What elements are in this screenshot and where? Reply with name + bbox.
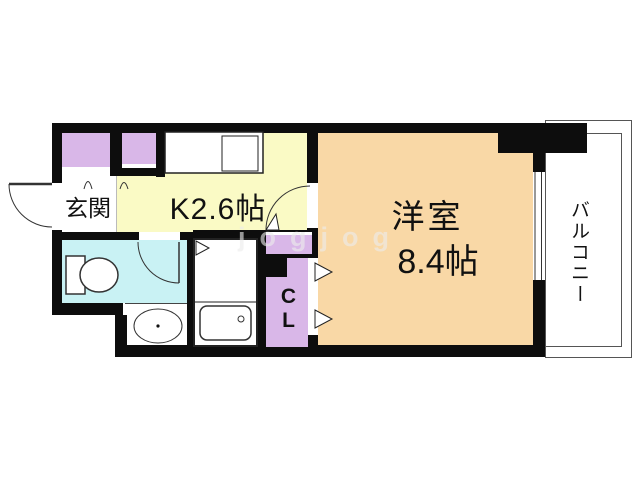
floorplan-image: 玄関 K2.6帖 洋室 8.4帖 CL バルコニー jogjog bbox=[0, 0, 640, 480]
bathtub-drain bbox=[238, 316, 244, 322]
bathroom-door-arc bbox=[138, 242, 179, 283]
genkan-step-mark bbox=[84, 182, 92, 190]
kitchen-sink bbox=[222, 136, 258, 171]
entrance-door-arc bbox=[9, 184, 52, 227]
toilet-bowl bbox=[80, 258, 118, 292]
genkan-label: 玄関 bbox=[60, 189, 116, 223]
closet-label: CL bbox=[276, 285, 300, 333]
bathtub-unit bbox=[194, 239, 257, 346]
watermark-text: jogjog bbox=[238, 222, 403, 253]
washbasin-drain-dot bbox=[156, 324, 159, 327]
balcony-label: バルコニー bbox=[565, 180, 592, 325]
closet-door-marker-top bbox=[315, 263, 332, 281]
closet-door-marker-bottom bbox=[315, 310, 332, 328]
